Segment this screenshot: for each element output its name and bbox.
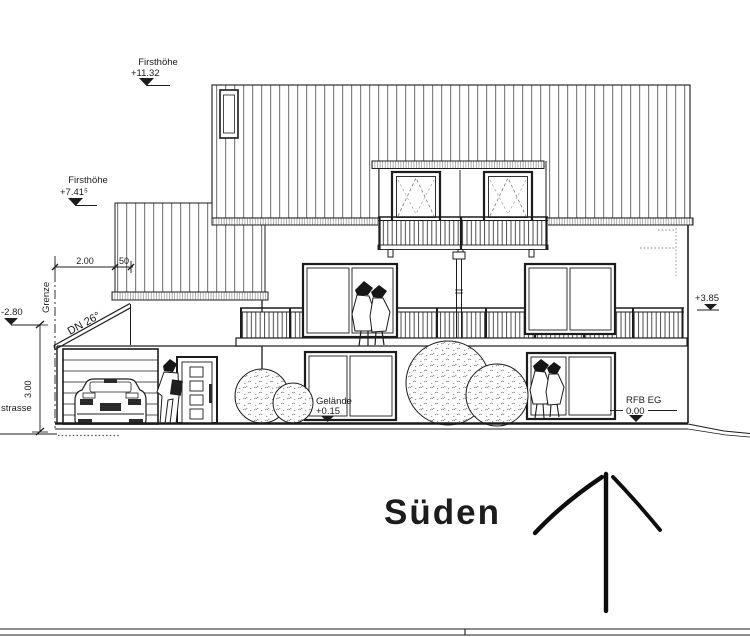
dim-50: 50: [119, 256, 129, 266]
street-level-value: -2.80: [1, 307, 23, 318]
annotation-ridge-main: Firsthöhe +11.32: [131, 57, 178, 86]
annotation-balcony-level: +3.85: [695, 293, 719, 310]
garage: [63, 349, 158, 424]
loggia-railing: [378, 217, 548, 257]
upper-window-right: [525, 264, 615, 334]
dim-3-00: 3.00: [23, 380, 33, 398]
car: [75, 379, 146, 424]
roof-loggia: [372, 161, 548, 257]
annotation-floor-level: RFB EG 0.00: [610, 395, 677, 422]
ridge-garage-label: Firsthöhe: [68, 175, 108, 186]
south-elevation-drawing: 2.00 50 3.00 Firsthöhe +11.32 Firsthöhe …: [0, 0, 750, 637]
loggia-header-band: [372, 161, 544, 169]
street-label: strasse: [1, 403, 32, 414]
ground-lines: [0, 424, 750, 438]
ridge-garage-value: +7.41⁵: [60, 187, 88, 198]
front-door: [177, 357, 217, 423]
ridge-main-label: Firsthöhe: [138, 57, 178, 68]
bush: [273, 383, 313, 423]
hidden-edge-lines: [640, 228, 676, 276]
loggia-window-left: [392, 172, 440, 222]
loggia-window-right: [484, 172, 532, 222]
north-arrow: [535, 474, 660, 611]
annex-roof-eave: [112, 292, 268, 300]
door-handle: [209, 384, 212, 403]
terrain-slope-right: [688, 424, 750, 434]
balcony-level-value: +3.85: [695, 293, 719, 304]
elevation-sheet: 2.00 50 3.00 Firsthöhe +11.32 Firsthöhe …: [0, 0, 750, 637]
page-title: Süden: [384, 493, 501, 532]
ridge-main-value: +11.32: [131, 68, 160, 79]
floor-label: RFB EG: [626, 395, 661, 406]
annotation-ridge-garage: Firsthöhe +7.41⁵: [60, 175, 108, 206]
roof-skylight-inner: [224, 95, 235, 133]
dim-2-00: 2.00: [76, 256, 94, 266]
terrain-value: +0.15: [316, 406, 340, 417]
boundary-label: Grenze: [41, 282, 52, 313]
annotation-street-level: -2.80: [1, 307, 40, 325]
sheet-border: [0, 629, 750, 635]
bush: [466, 364, 528, 426]
dimension-vertical: 3.00: [23, 321, 48, 435]
